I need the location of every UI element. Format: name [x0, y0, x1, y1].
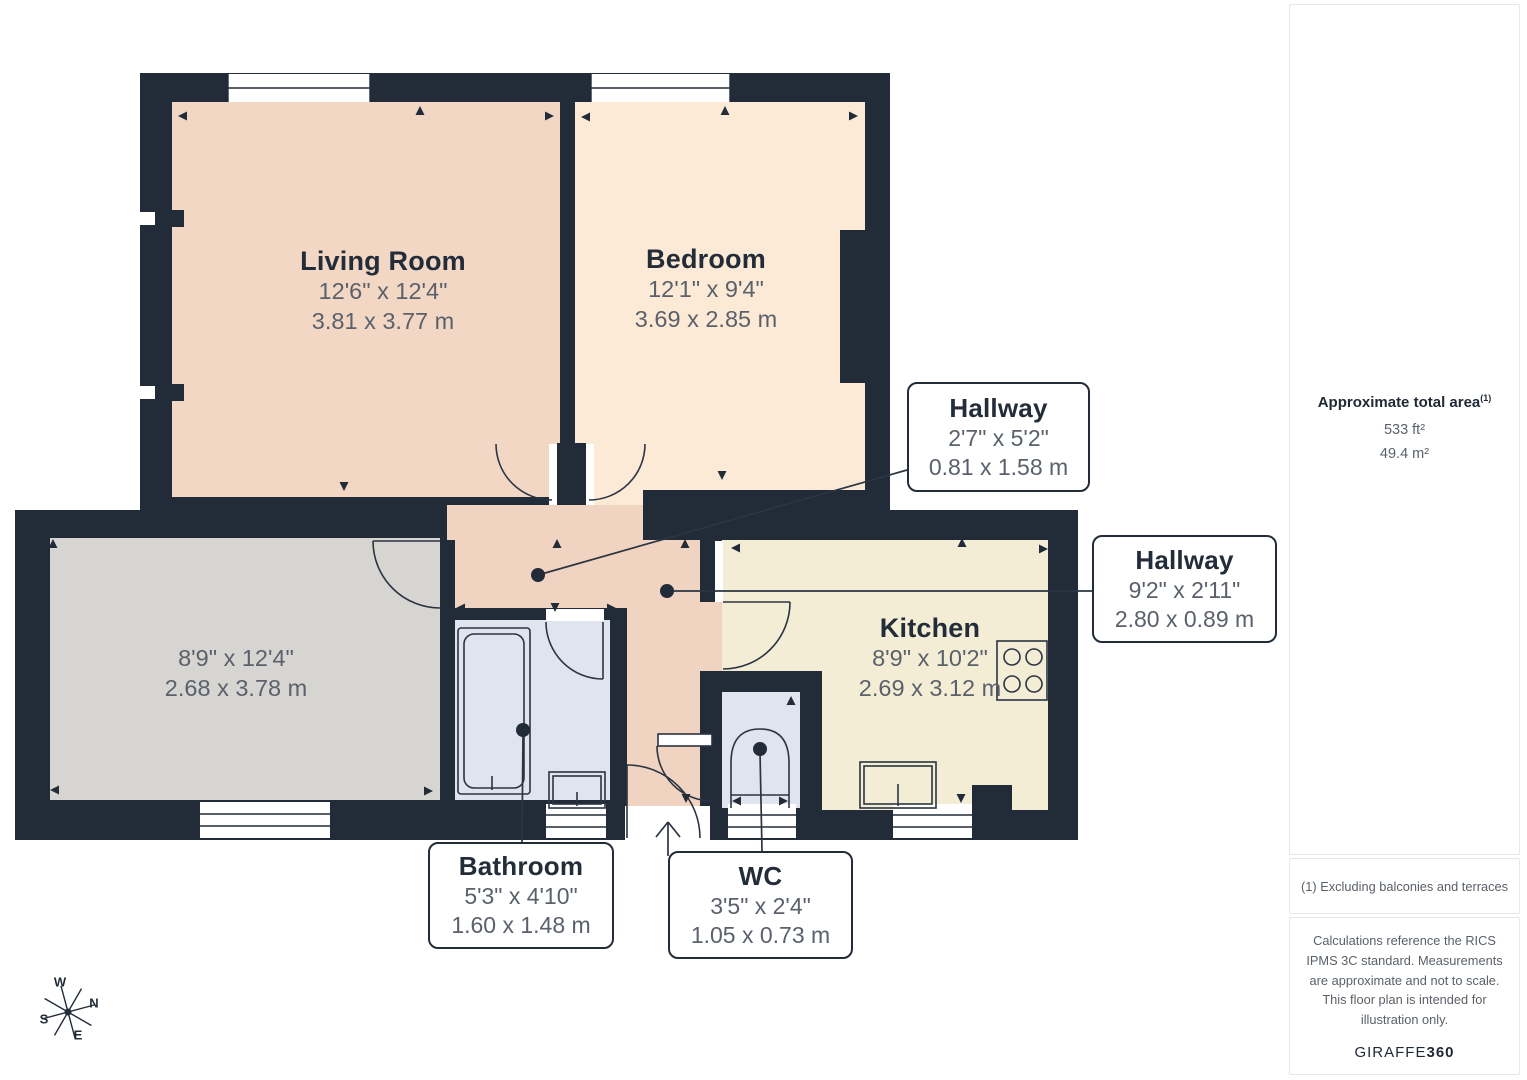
total-area-metric: 49.4 m²: [1380, 443, 1429, 466]
bathroom-leader: [522, 734, 523, 843]
hallway-upper-callout: Hallway 2'7" x 5'2" 0.81 x 1.58 m: [907, 382, 1090, 492]
living-room-window: [228, 74, 370, 102]
hallway-lower-callout: Hallway 9'2" x 2'11" 2.80 x 0.89 m: [1092, 535, 1277, 643]
brand-name: GIRAFFE: [1354, 1044, 1426, 1061]
living-room-area: [172, 102, 560, 497]
hallway-upper-dims-ft: 2'7" x 5'2": [948, 424, 1049, 453]
bathroom-area: [455, 620, 610, 800]
hallway-lower-area: [455, 540, 700, 608]
unnamed-room-window: [200, 802, 330, 838]
wc-name: WC: [739, 861, 783, 892]
brand-suffix: 360: [1426, 1044, 1454, 1061]
footnote-text: (1) Excluding balconies and terraces: [1301, 879, 1508, 894]
total-area-imperial: 533 ft²: [1384, 419, 1425, 442]
wc-dims-ft: 3'5" x 2'4": [710, 892, 811, 921]
kitchen-window: [893, 804, 972, 838]
compass-west-label: W: [54, 975, 66, 990]
hallway-lower-name: Hallway: [1135, 545, 1233, 576]
compass-east-label: E: [74, 1028, 83, 1043]
bathroom-window: [546, 804, 606, 838]
hallway-upper-area: [447, 505, 643, 540]
hallway-lower-dims-m: 2.80 x 0.89 m: [1115, 605, 1254, 634]
hallway-upper-name: Hallway: [949, 393, 1047, 424]
wc-callout: WC 3'5" x 2'4" 1.05 x 0.73 m: [668, 851, 853, 959]
bathroom-name: Bathroom: [459, 851, 583, 882]
bathroom-callout: Bathroom 5'3" x 4'10" 1.60 x 1.48 m: [428, 842, 614, 949]
unnamed-room-area: [50, 538, 440, 800]
compass-south-label: S: [40, 1012, 49, 1027]
floorplan-page: Living Room 12'6" x 12'4" 3.81 x 3.77 m …: [0, 0, 1527, 1080]
compass-north-label: N: [89, 996, 98, 1011]
wc-dims-m: 1.05 x 0.73 m: [691, 921, 830, 950]
bathroom-dims-m: 1.60 x 1.48 m: [451, 911, 590, 940]
disclaimer-panel: Calculations reference the RICS IPMS 3C …: [1289, 917, 1520, 1075]
compass-icon: [42, 986, 94, 1038]
footnote-panel: (1) Excluding balconies and terraces: [1289, 858, 1520, 914]
hallway-upper-dims-m: 0.81 x 1.58 m: [929, 453, 1068, 482]
giraffe360-logo: GIRAFFE360: [1354, 1044, 1454, 1061]
total-area-panel: Approximate total area(1) 533 ft² 49.4 m…: [1289, 4, 1520, 855]
disclaimer-text: Calculations reference the RICS IPMS 3C …: [1306, 931, 1504, 1030]
hallway-lower-dims-ft: 9'2" x 2'11": [1129, 576, 1241, 605]
total-area-title-text: Approximate total area: [1318, 394, 1481, 411]
bedroom-window: [591, 74, 730, 102]
bedroom-area: [575, 102, 865, 490]
bathroom-dims-ft: 5'3" x 4'10": [464, 882, 577, 911]
total-area-footnote-marker: (1): [1480, 393, 1491, 403]
room-fills: [50, 102, 1048, 840]
total-area-title: Approximate total area(1): [1318, 393, 1492, 411]
